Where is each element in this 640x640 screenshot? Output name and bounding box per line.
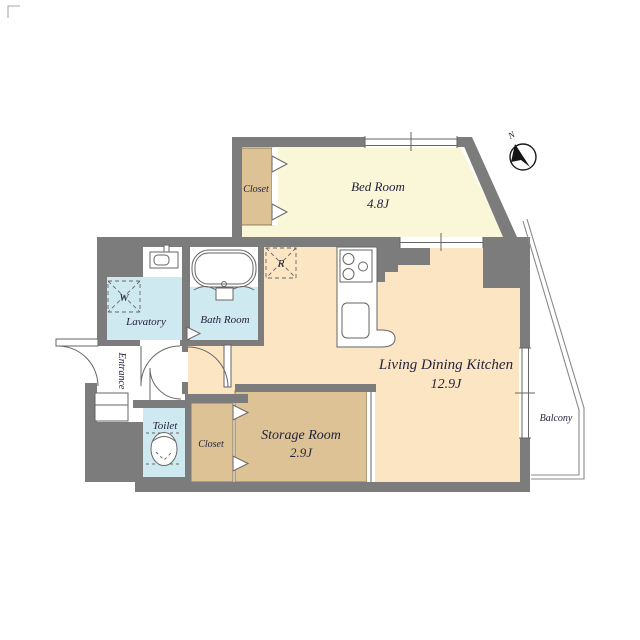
compass-icon: N <box>506 129 536 170</box>
wall-segment <box>97 340 140 346</box>
compass-north-label: N <box>506 129 518 142</box>
closet-bottom-label: Closet <box>198 439 224 450</box>
floor-plan-page: N Bed Room 4.8J Living Dining Kitchen 12… <box>0 0 640 640</box>
wall-segment <box>135 482 530 492</box>
entrance-hall-floor <box>97 343 182 400</box>
floor-plan-drawing: N Bed Room 4.8J Living Dining Kitchen 12… <box>0 0 640 640</box>
ldk-label: Living Dining Kitchen <box>378 357 513 373</box>
entrance-door <box>56 339 98 386</box>
wall-segment <box>483 237 530 288</box>
wall-segment <box>258 247 264 343</box>
wall-segment <box>97 237 283 247</box>
lavatory-floor <box>107 277 182 340</box>
bathroom-label: Bath Room <box>200 314 249 326</box>
refrigerator-marker-label: R <box>277 258 285 270</box>
ldk-size-label: 12.9J <box>431 377 463 392</box>
wall-segment <box>185 394 248 403</box>
storage-label: Storage Room <box>261 428 341 443</box>
wall-segment <box>97 247 143 277</box>
wall-segment <box>85 422 143 482</box>
wall-segment <box>180 340 190 346</box>
wall-segment <box>143 477 191 482</box>
wall-segment <box>277 237 400 247</box>
balcony-outline <box>523 219 584 479</box>
bedroom-size-label: 4.8J <box>367 196 390 211</box>
entrance-door-opening <box>97 343 107 383</box>
wall-segment <box>235 384 376 392</box>
entrance-step <box>95 393 128 421</box>
entrance-label: Entrance <box>116 352 127 390</box>
closet-top-label: Closet <box>243 184 269 195</box>
wall-segment <box>182 382 188 394</box>
lavatory-label: Lavatory <box>125 316 166 328</box>
wall-segment <box>185 400 191 482</box>
washer-marker-label: W <box>119 292 129 304</box>
storage-size-label: 2.9J <box>290 445 313 460</box>
bedroom-label: Bed Room <box>351 179 405 194</box>
balcony-label: Balcony <box>540 413 573 424</box>
corner-mark <box>8 6 20 18</box>
wall-segment <box>133 400 191 408</box>
wall-segment <box>182 346 188 352</box>
wall-segment <box>232 147 242 237</box>
toilet-label: Toilet <box>153 420 179 432</box>
